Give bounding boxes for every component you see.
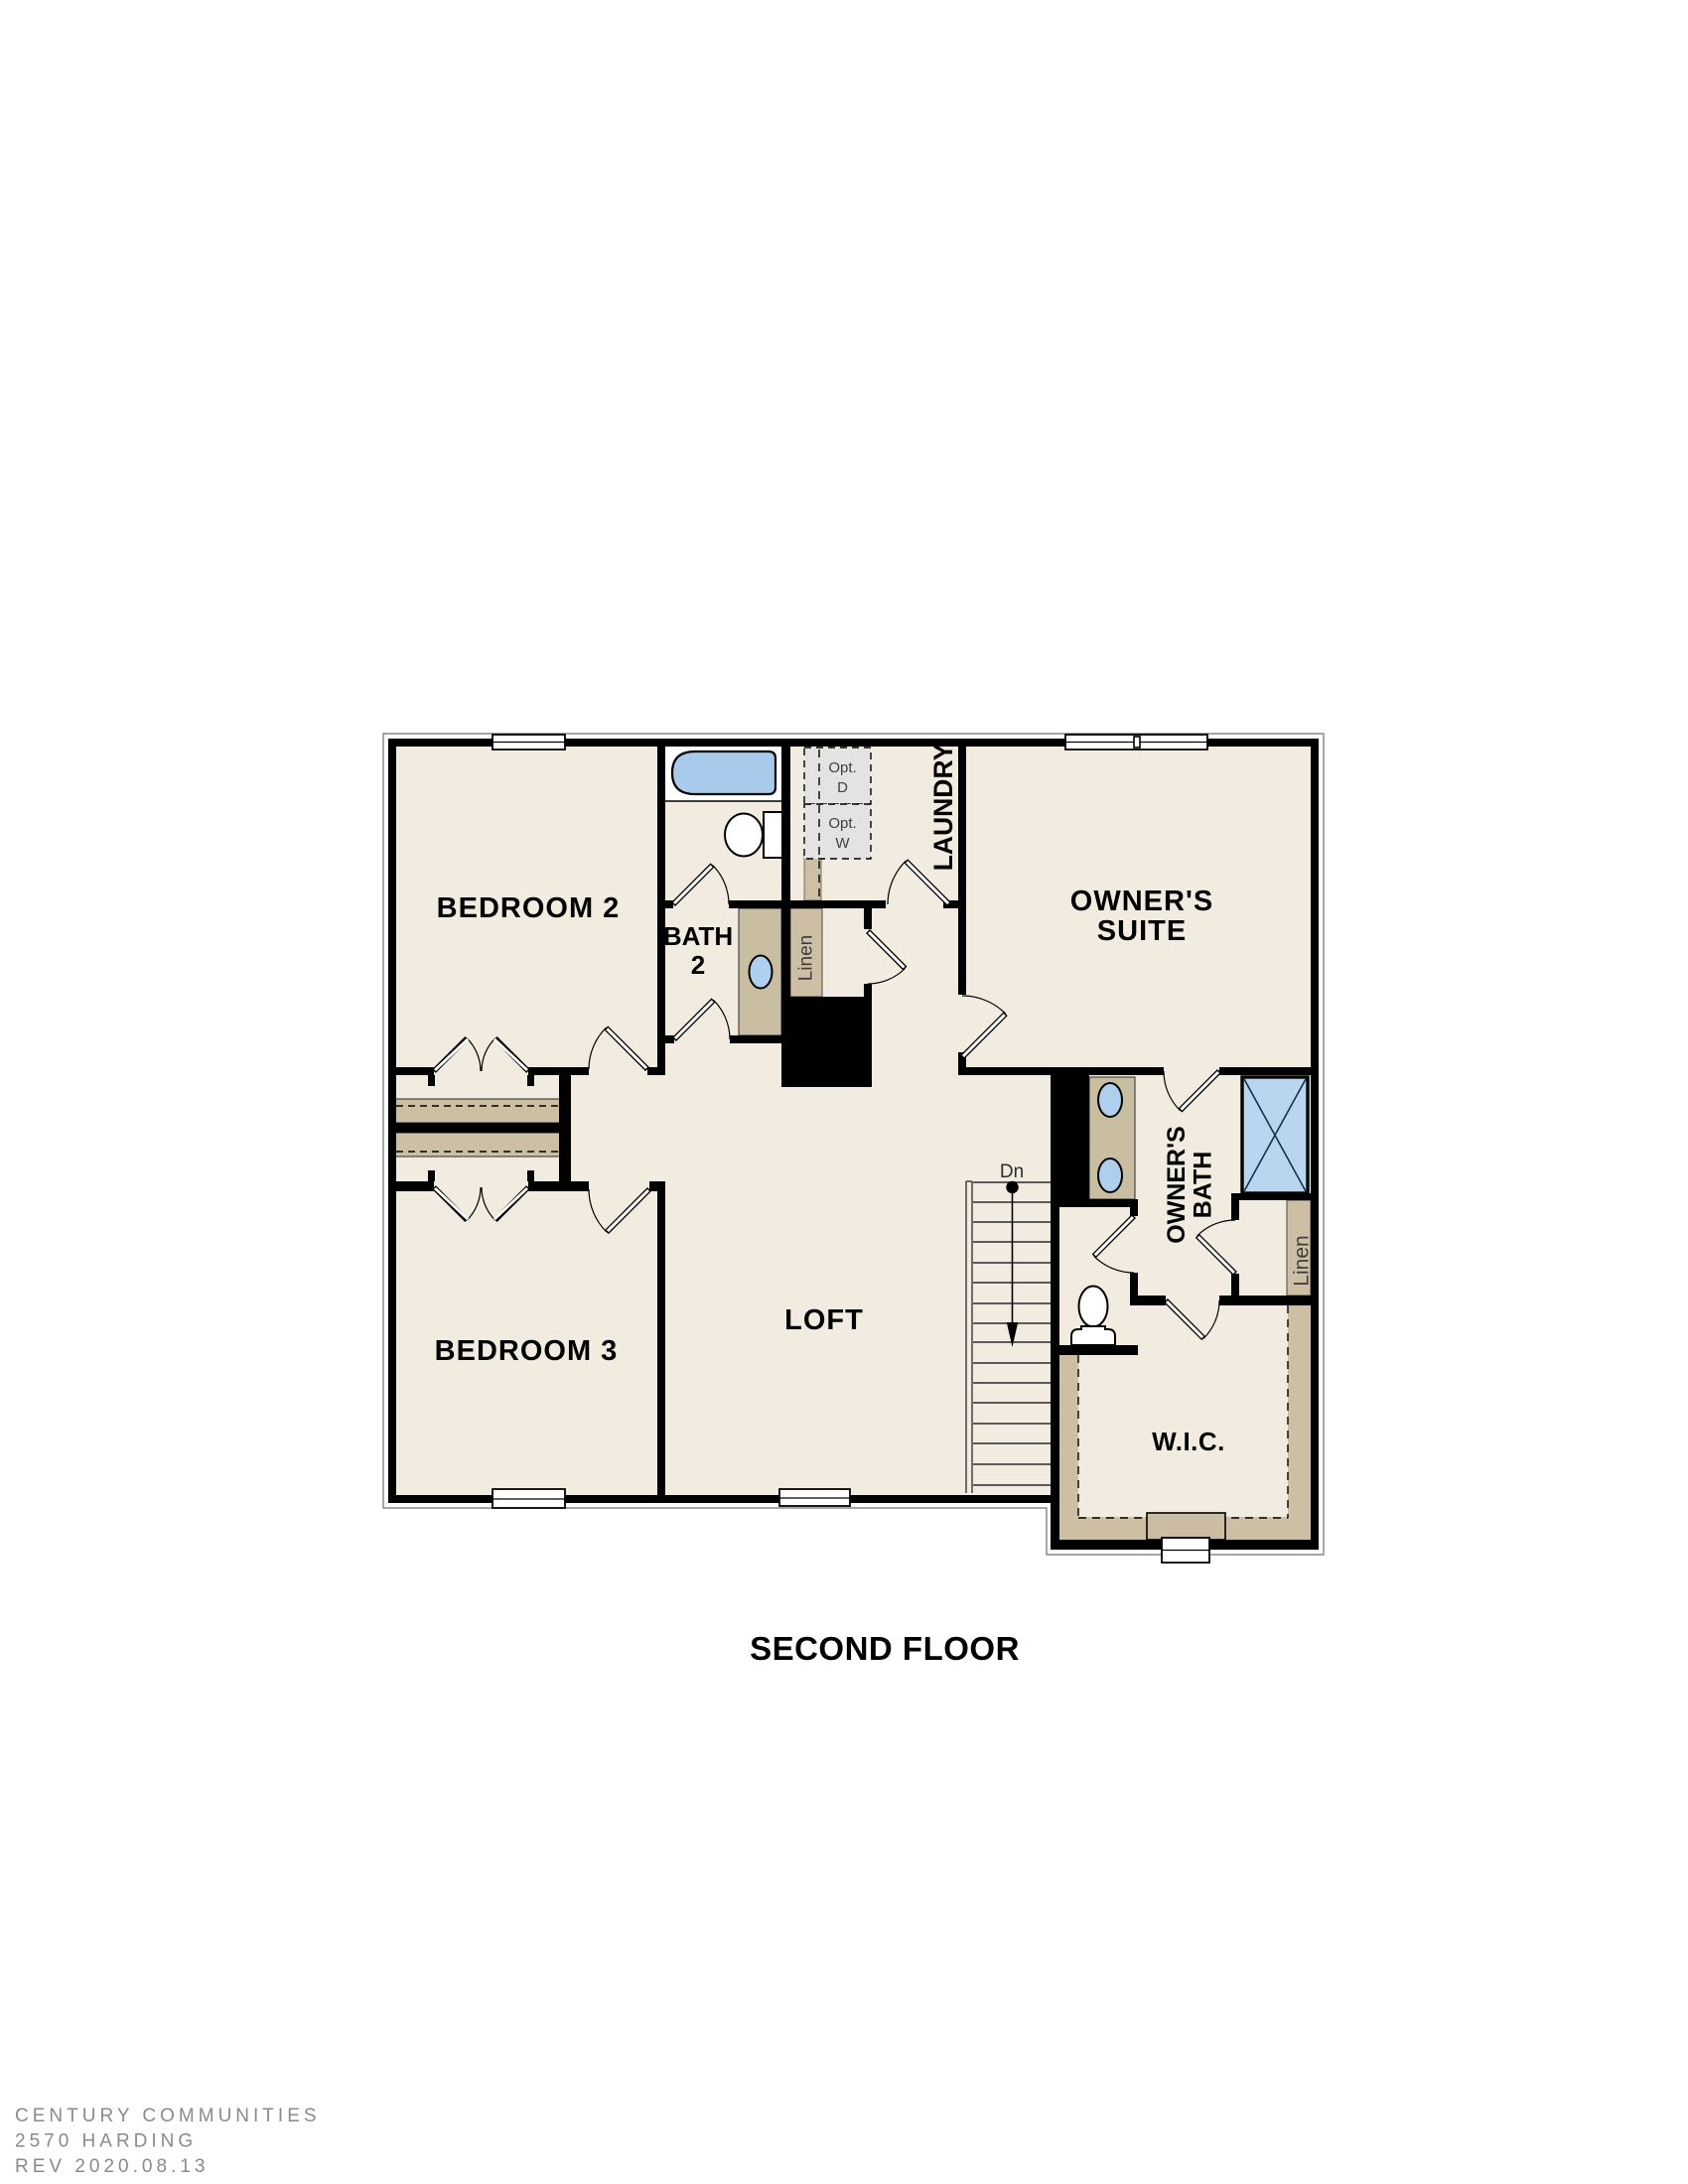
svg-text:BEDROOM 3: BEDROOM 3 [435,1335,619,1367]
svg-text:Linen: Linen [796,935,817,982]
svg-text:2: 2 [691,950,705,980]
svg-text:LOFT: LOFT [784,1304,864,1336]
svg-text:BATH: BATH [1190,1152,1217,1219]
svg-text:Opt.: Opt. [828,815,856,832]
svg-text:W.I.C.: W.I.C. [1152,1427,1225,1456]
svg-text:SUITE: SUITE [1097,915,1187,947]
svg-text:BEDROOM 2: BEDROOM 2 [437,892,621,924]
svg-text:LAUNDRY: LAUNDRY [928,743,958,871]
svg-text:Dn: Dn [1000,1161,1024,1182]
svg-text:OWNER'S: OWNER'S [1163,1126,1191,1243]
svg-text:REV 2020.08.13: REV 2020.08.13 [15,2156,209,2177]
svg-text:Opt.: Opt. [828,759,856,776]
svg-text:D: D [837,779,848,796]
svg-text:CENTURY COMMUNITIES: CENTURY COMMUNITIES [15,2106,321,2126]
svg-text:Linen: Linen [1291,1235,1314,1286]
svg-text:W: W [835,835,850,852]
svg-text:BATH: BATH [663,921,733,951]
svg-text:OWNER'S: OWNER'S [1070,886,1213,917]
svg-text:2570 HARDING: 2570 HARDING [15,2131,197,2152]
svg-text:SECOND FLOOR: SECOND FLOOR [750,1630,1020,1667]
